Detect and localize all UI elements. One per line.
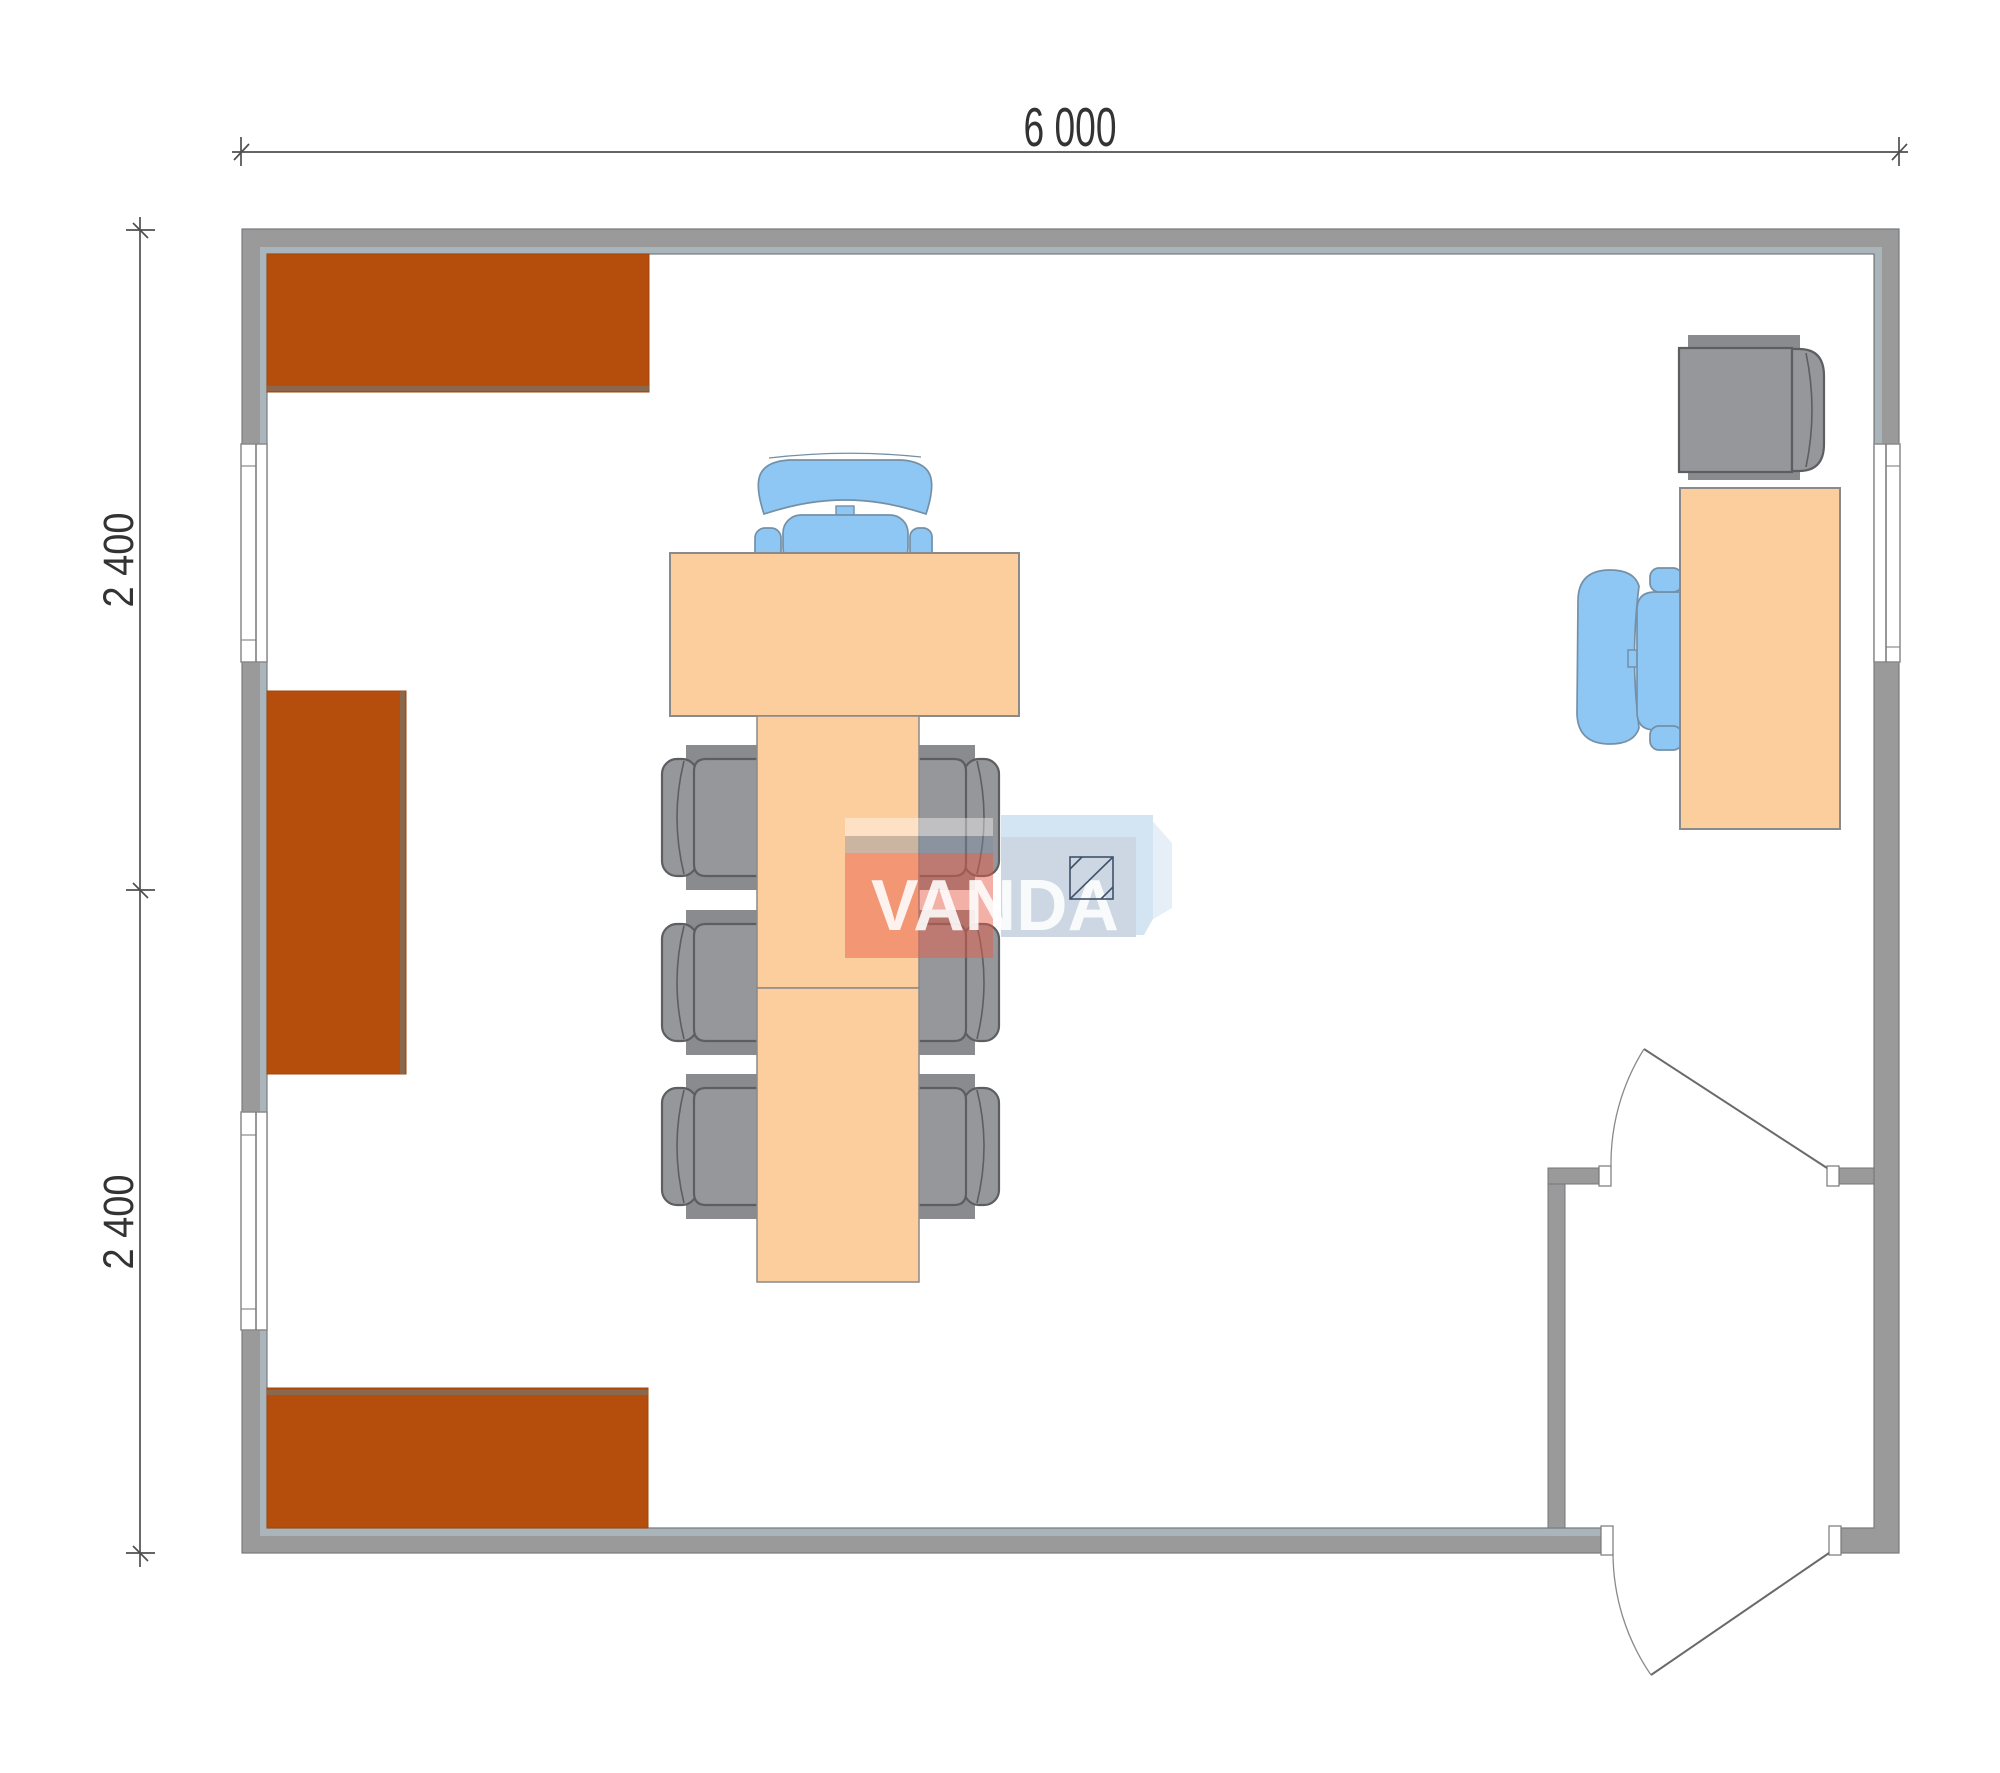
svg-text:VANDA: VANDA (871, 866, 1119, 946)
svg-text:2 400: 2 400 (95, 1175, 143, 1270)
svg-text:6 000: 6 000 (1024, 96, 1117, 158)
svg-text:2 400: 2 400 (95, 513, 143, 608)
